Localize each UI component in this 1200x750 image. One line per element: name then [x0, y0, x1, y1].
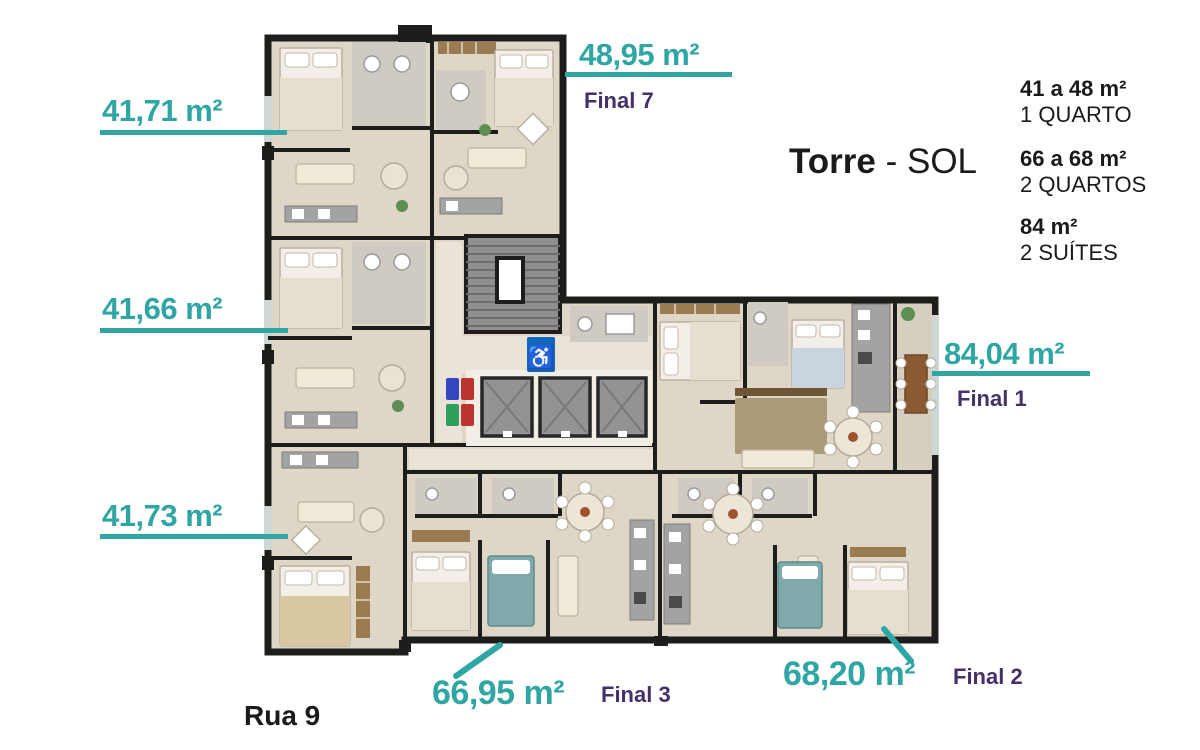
- unit-area-label-48-95: 48,95 m²: [579, 37, 699, 73]
- unit-final-label-1: Final 1: [957, 386, 1027, 412]
- underline-84-04: [932, 371, 1090, 376]
- unit-final-label-2: Final 2: [953, 664, 1023, 690]
- plant-icon: [479, 124, 491, 136]
- wardrobe: [356, 566, 370, 638]
- daybed-icon: [778, 562, 822, 628]
- stairs: [466, 236, 560, 332]
- wardrobe: [438, 42, 496, 54]
- table-icon: [360, 508, 384, 532]
- daybed-icon: [488, 556, 534, 626]
- unit-final-label-7: Final 7: [584, 88, 654, 114]
- underline-41-73: [100, 534, 288, 539]
- floorplan-page: ♿: [0, 0, 1200, 750]
- underline-41-71: [100, 130, 287, 135]
- plant-icon: [396, 200, 408, 212]
- title-tower-name: Torre: [789, 142, 876, 181]
- legend-item-2-suites: 84 m² 2 SUÍTES: [1020, 214, 1118, 267]
- underline-48-95: [565, 72, 732, 77]
- bed-icon: [280, 248, 342, 328]
- unit-area-label-66-95: 66,95 m²: [432, 674, 564, 713]
- bed-icon: [792, 320, 844, 388]
- unit-area-label-84-04: 84,04 m²: [944, 336, 1064, 372]
- legend-item-2-quartos: 66 a 68 m² 2 QUARTOS: [1020, 146, 1146, 199]
- unit-area-label-41-66: 41,66 m²: [102, 291, 222, 327]
- wardrobe: [412, 530, 470, 542]
- title-tower-suffix: - SOL: [886, 142, 977, 181]
- sofa-icon: [296, 164, 354, 184]
- table-icon: [379, 365, 405, 391]
- unit-area-label-68-20: 68,20 m²: [783, 655, 915, 694]
- bed-icon: [412, 552, 470, 630]
- table-icon: [381, 163, 407, 189]
- sofa-icon: [296, 368, 354, 388]
- wardrobe: [660, 304, 740, 314]
- bed-icon: [280, 48, 342, 130]
- bed-icon: [280, 566, 350, 646]
- legend-unit-type: 2 SUÍTES: [1020, 240, 1118, 266]
- bed-icon: [495, 50, 553, 126]
- page-title: Torre - SOL: [789, 142, 977, 182]
- leader-line-final3: [456, 645, 500, 676]
- wardrobe: [850, 547, 906, 557]
- elevator-icon: [598, 378, 646, 437]
- balcony-table-icon: [905, 355, 927, 413]
- bed-icon: [660, 322, 740, 380]
- underline-41-66: [100, 328, 288, 333]
- sofa-icon: [468, 148, 526, 168]
- bed-icon: [848, 562, 908, 634]
- legend-unit-type: 2 QUARTOS: [1020, 172, 1146, 198]
- sofa-icon: [742, 450, 814, 468]
- tv-bench: [735, 388, 827, 396]
- street-label: Rua 9: [244, 700, 320, 732]
- sofa-icon: [558, 556, 578, 616]
- table-icon: [444, 166, 468, 190]
- service-bathroom: [570, 306, 648, 342]
- legend-area-range: 66 a 68 m²: [1020, 146, 1146, 172]
- unit-area-label-41-73: 41,73 m²: [102, 498, 222, 534]
- elevator-icon: [540, 378, 590, 437]
- svg-text:♿: ♿: [527, 345, 554, 370]
- legend-area-range: 41 a 48 m²: [1020, 76, 1132, 102]
- legend-item-1-quarto: 41 a 48 m² 1 QUARTO: [1020, 76, 1132, 129]
- plant-icon: [901, 307, 915, 321]
- elevator-bank: [466, 370, 652, 446]
- legend-area-range: 84 m²: [1020, 214, 1118, 240]
- elevator-icon: [482, 378, 532, 437]
- balcony: [896, 304, 936, 469]
- plant-icon: [392, 400, 404, 412]
- sofa-icon: [298, 502, 354, 522]
- unit-area-label-41-71: 41,71 m²: [102, 93, 222, 129]
- wheelchair-accessible-icon: ♿: [527, 337, 555, 372]
- legend-unit-type: 1 QUARTO: [1020, 102, 1132, 128]
- rug: [735, 398, 827, 454]
- unit-final-label-3: Final 3: [601, 682, 671, 708]
